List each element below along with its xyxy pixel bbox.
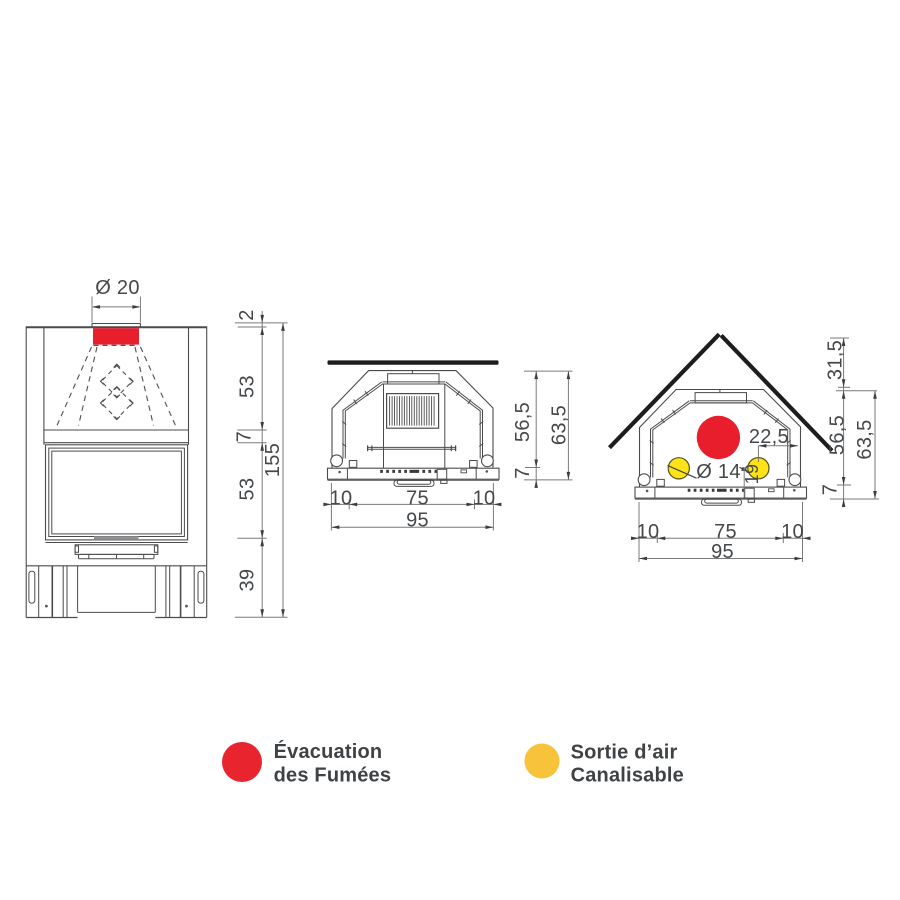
svg-text:75: 75 [714,521,737,543]
svg-text:Évacuation: Évacuation [274,740,383,763]
svg-text:10: 10 [473,488,496,510]
svg-text:63,5: 63,5 [548,405,570,445]
svg-text:75: 75 [406,488,429,510]
svg-text:22,5: 22,5 [749,426,789,448]
svg-text:2: 2 [236,309,258,320]
svg-text:95: 95 [711,541,734,563]
svg-text:53: 53 [236,478,258,501]
svg-text:63,5: 63,5 [854,419,876,459]
svg-text:10: 10 [637,521,660,543]
svg-text:Sortie d’air: Sortie d’air [571,742,678,764]
svg-text:31,5: 31,5 [824,340,846,380]
svg-text:95: 95 [406,510,429,532]
svg-text:39: 39 [236,569,258,592]
svg-text:53: 53 [236,375,258,398]
svg-text:155: 155 [262,443,284,477]
svg-text:56,5: 56,5 [512,402,534,442]
svg-text:19: 19 [742,464,762,485]
svg-text:Ø 20: Ø 20 [95,277,140,299]
svg-text:des Fumées: des Fumées [274,764,392,786]
svg-text:56,5: 56,5 [826,415,848,455]
svg-text:7: 7 [512,467,534,478]
svg-text:Canalisable: Canalisable [571,765,684,787]
svg-text:10: 10 [781,521,804,543]
svg-text:Ø 14: Ø 14 [696,461,741,483]
svg-text:7: 7 [819,484,841,495]
svg-text:7: 7 [234,431,256,442]
svg-text:10: 10 [330,488,353,510]
